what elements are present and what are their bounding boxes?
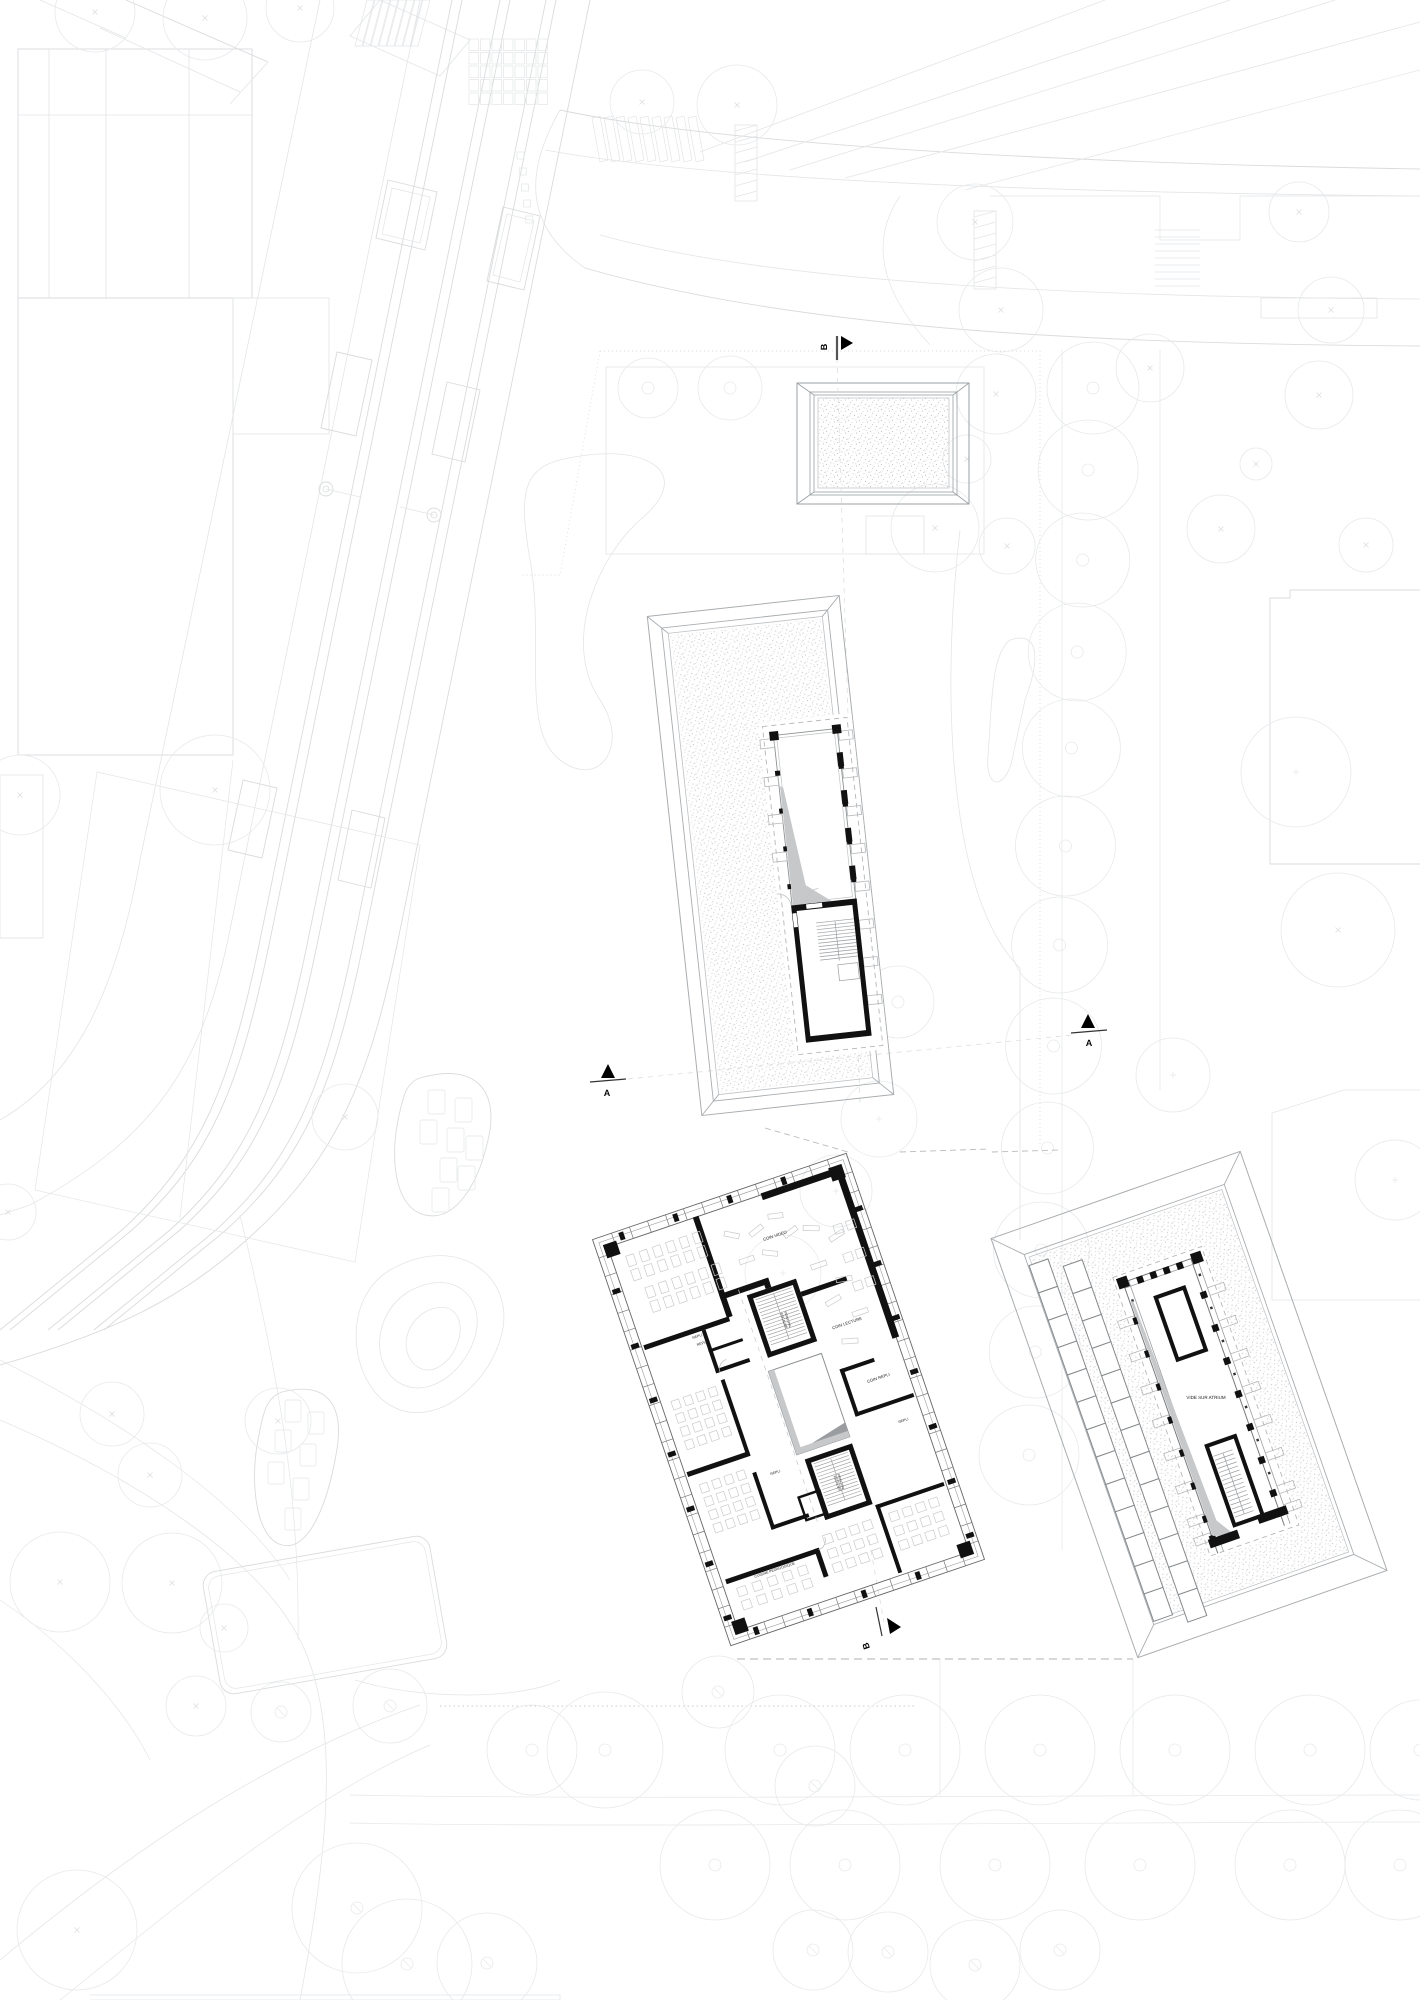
svg-text:VIDE SUR ATRIUM: VIDE SUR ATRIUM — [1186, 1395, 1225, 1400]
svg-text:A: A — [1086, 1038, 1093, 1048]
svg-text:A: A — [604, 1088, 611, 1098]
svg-text:B: B — [819, 343, 829, 350]
